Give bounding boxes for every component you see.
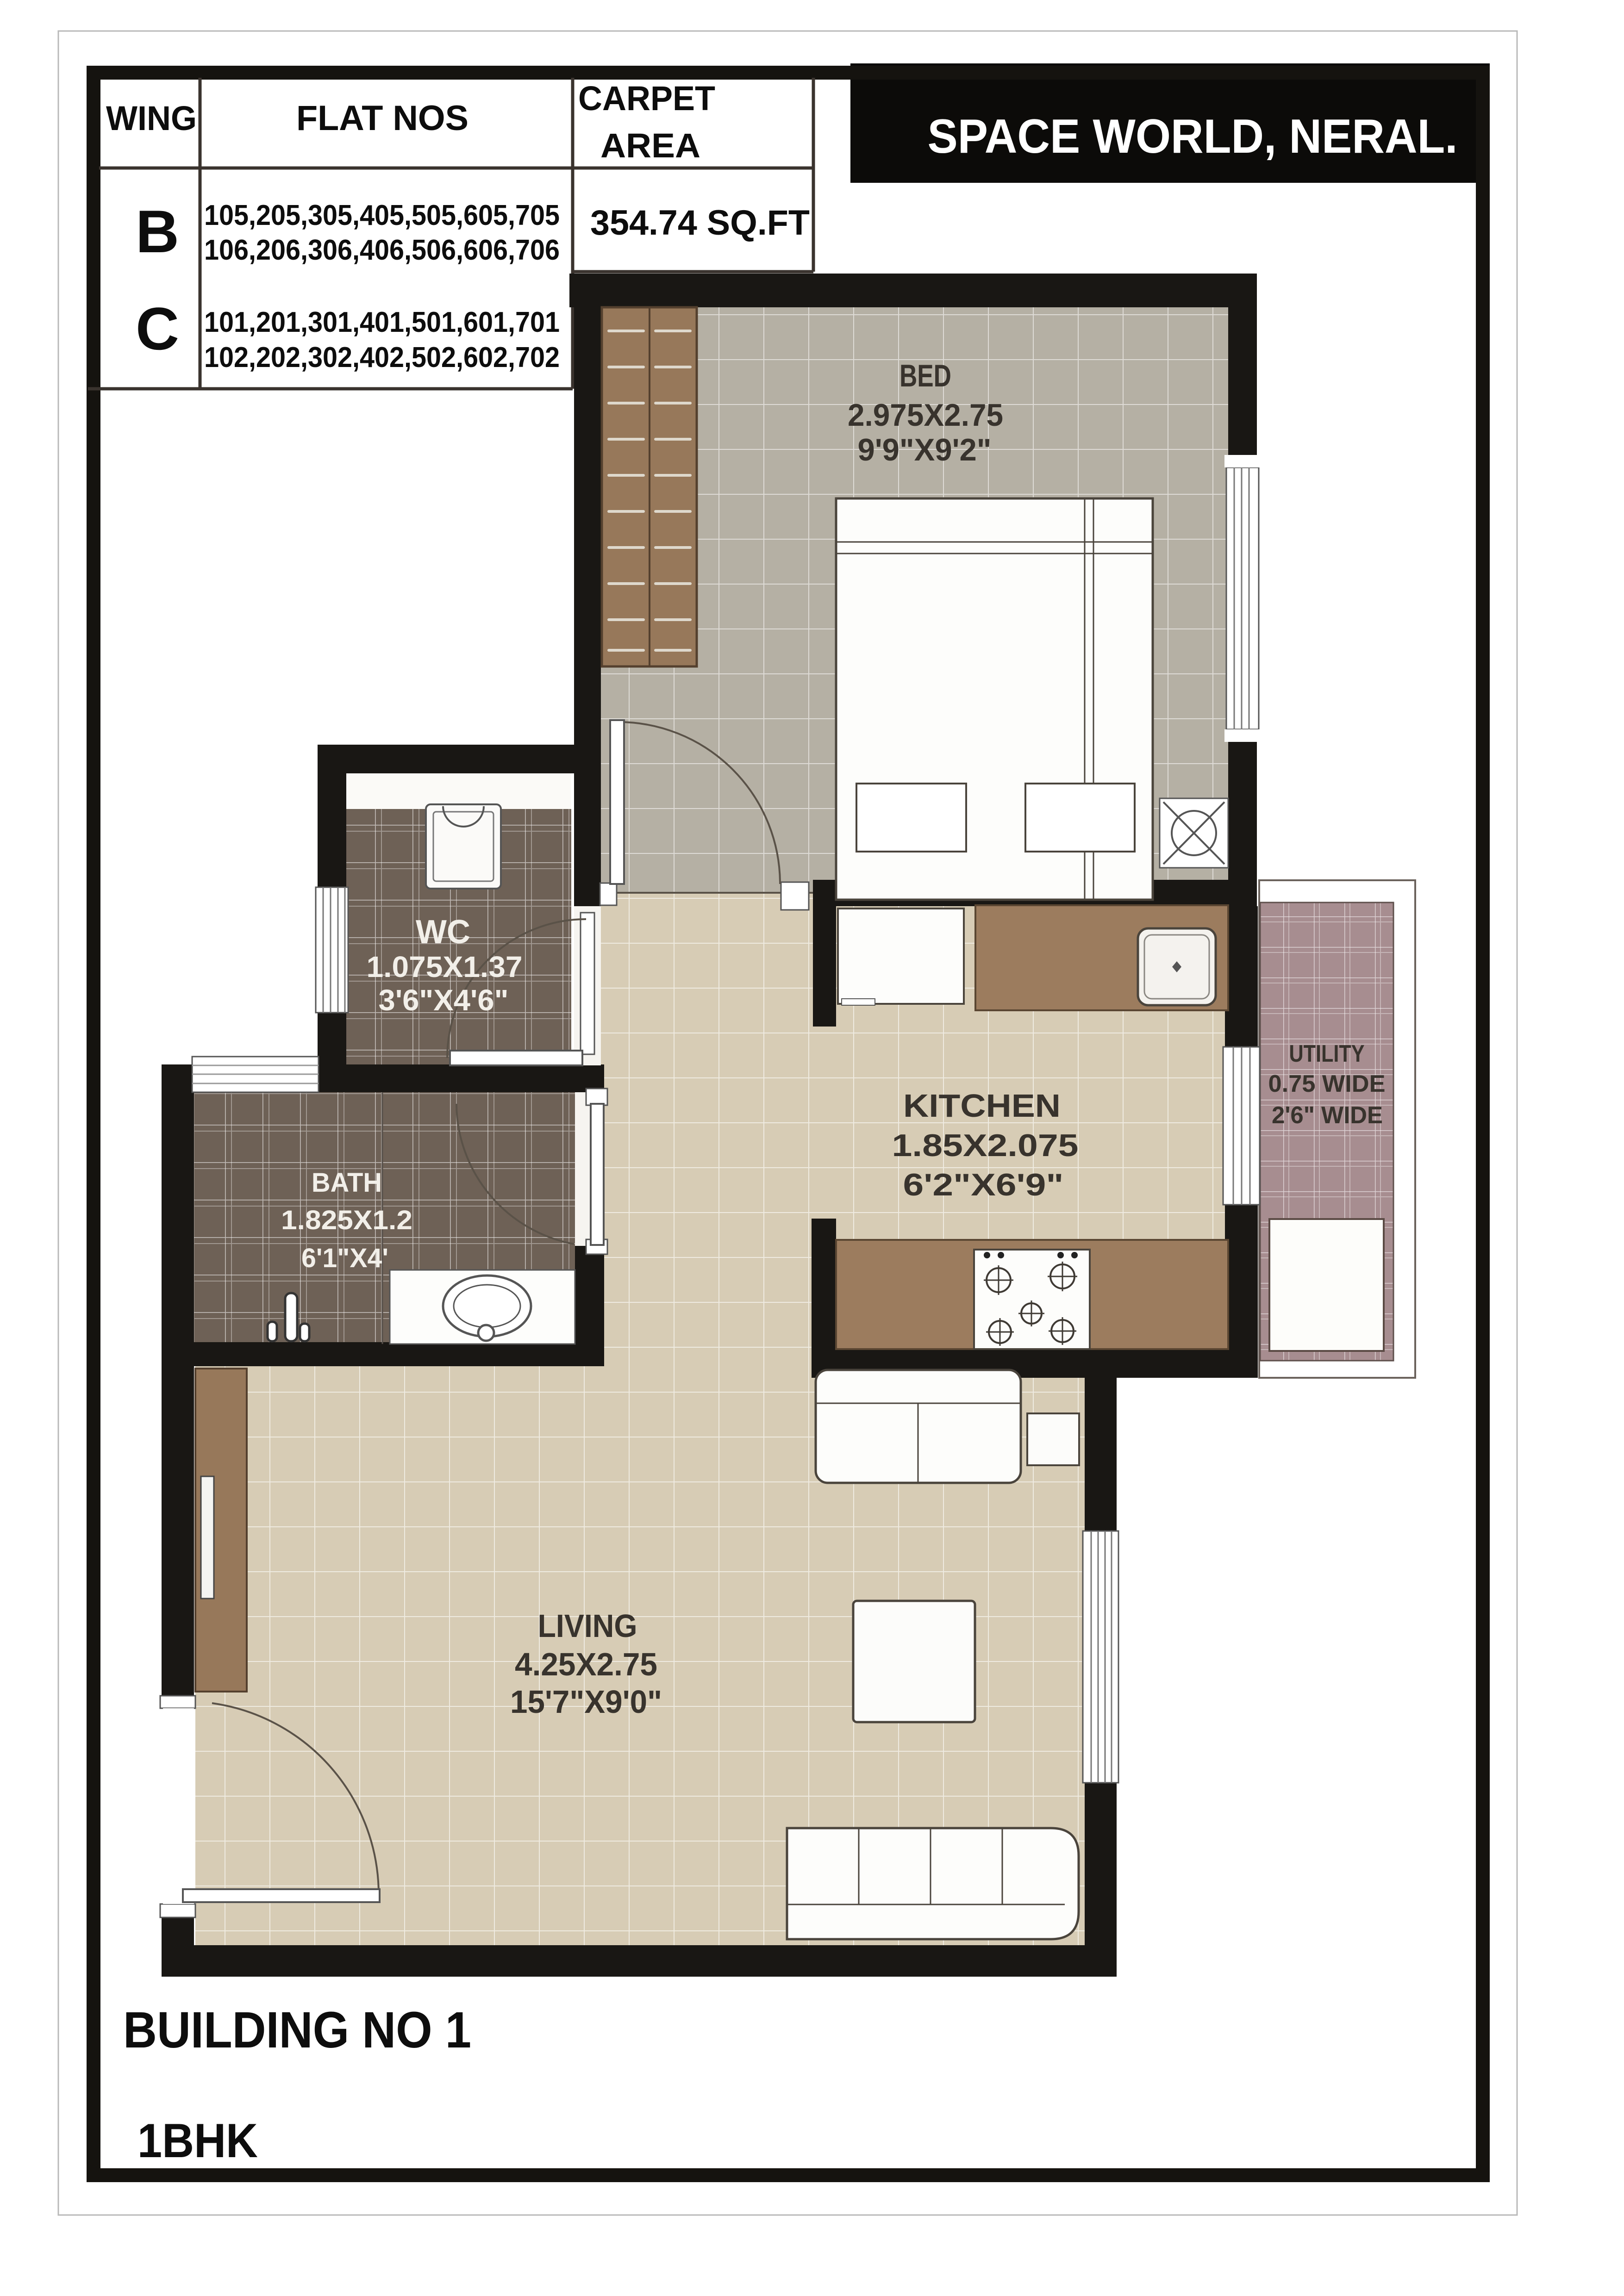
svg-text:UTILITY: UTILITY (1289, 1040, 1365, 1067)
svg-text:CARPET: CARPET (578, 79, 715, 118)
svg-text:AREA: AREA (600, 126, 700, 165)
svg-text:2.975X2.75: 2.975X2.75 (848, 398, 1003, 433)
svg-text:354.74 SQ.FT: 354.74 SQ.FT (590, 203, 810, 243)
svg-text:BED: BED (899, 358, 951, 393)
svg-text:1.075X1.37: 1.075X1.37 (367, 950, 523, 983)
svg-text:FLAT NOS: FLAT NOS (296, 99, 468, 138)
svg-text:6'1"X4': 6'1"X4' (301, 1243, 388, 1273)
svg-text:9'9"X9'2": 9'9"X9'2" (858, 432, 992, 467)
svg-text:KITCHEN: KITCHEN (903, 1088, 1061, 1124)
svg-text:1.825X1.2: 1.825X1.2 (281, 1205, 412, 1235)
svg-text:102,202,302,402,502,602,702: 102,202,302,402,502,602,702 (204, 342, 560, 373)
svg-text:2'6" WIDE: 2'6" WIDE (1272, 1102, 1383, 1129)
svg-text:106,206,306,406,506,606,706: 106,206,306,406,506,606,706 (204, 234, 560, 266)
svg-text:1.85X2.075: 1.85X2.075 (892, 1128, 1079, 1163)
svg-text:BATH: BATH (312, 1168, 382, 1198)
svg-text:1BHK: 1BHK (137, 2114, 258, 2168)
svg-text:101,201,301,401,501,601,701: 101,201,301,401,501,601,701 (204, 306, 560, 338)
svg-text:3'6"X4'6": 3'6"X4'6" (379, 983, 509, 1017)
svg-text:WC: WC (416, 914, 470, 951)
svg-text:C: C (136, 295, 179, 362)
svg-text:4.25X2.75: 4.25X2.75 (515, 1646, 657, 1682)
svg-text:SPACE WORLD, NERAL.: SPACE WORLD, NERAL. (928, 110, 1458, 163)
svg-text:15'7"X9'0": 15'7"X9'0" (510, 1684, 662, 1720)
svg-text:B: B (136, 198, 179, 265)
svg-text:6'2"X6'9": 6'2"X6'9" (903, 1167, 1064, 1202)
svg-text:WING: WING (106, 99, 197, 137)
svg-text:BUILDING NO 1: BUILDING NO 1 (123, 2002, 471, 2059)
svg-text:0.75 WIDE: 0.75 WIDE (1268, 1070, 1386, 1097)
svg-text:LIVING: LIVING (538, 1608, 637, 1644)
svg-text:105,205,305,405,505,605,705: 105,205,305,405,505,605,705 (204, 199, 560, 231)
